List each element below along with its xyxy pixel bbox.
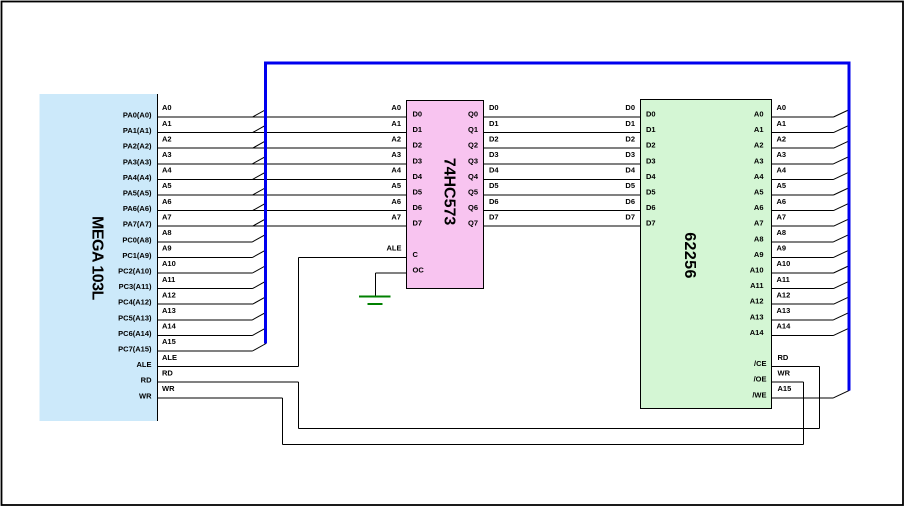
svg-text:A3: A3 <box>754 156 764 165</box>
svg-text:A5: A5 <box>754 188 764 197</box>
svg-text:Q2: Q2 <box>468 141 478 150</box>
svg-text:A4: A4 <box>162 166 172 175</box>
svg-text:D1: D1 <box>413 125 423 134</box>
svg-text:PC6(A14): PC6(A14) <box>118 329 152 338</box>
svg-text:D5: D5 <box>489 181 499 190</box>
svg-text:MEGA 103L: MEGA 103L <box>89 216 106 301</box>
svg-text:A12: A12 <box>162 290 176 299</box>
svg-text:D7: D7 <box>489 212 499 221</box>
svg-text:A0: A0 <box>162 103 172 112</box>
svg-text:D3: D3 <box>489 150 499 159</box>
svg-text:A10: A10 <box>777 259 791 268</box>
svg-text:A1: A1 <box>754 125 764 134</box>
svg-text:D5: D5 <box>646 188 656 197</box>
svg-text:A10: A10 <box>162 259 176 268</box>
svg-text:A7: A7 <box>391 212 401 221</box>
svg-text:A7: A7 <box>162 212 172 221</box>
svg-text:PC5(A13): PC5(A13) <box>118 313 152 322</box>
svg-text:ALE: ALE <box>387 244 402 253</box>
svg-text:Q7: Q7 <box>468 219 478 228</box>
svg-text:A13: A13 <box>777 306 791 315</box>
svg-text:Q3: Q3 <box>468 156 478 165</box>
svg-text:D1: D1 <box>489 119 499 128</box>
svg-text:/OE: /OE <box>754 375 767 384</box>
svg-text:A3: A3 <box>391 150 401 159</box>
svg-text:D2: D2 <box>646 141 656 150</box>
svg-text:A9: A9 <box>162 244 172 253</box>
svg-text:A2: A2 <box>754 141 764 150</box>
svg-text:RD: RD <box>162 368 173 377</box>
svg-text:A3: A3 <box>162 150 172 159</box>
svg-text:PA4(A4): PA4(A4) <box>123 173 152 182</box>
svg-text:D5: D5 <box>625 181 635 190</box>
svg-text:D0: D0 <box>646 110 656 119</box>
svg-text:A3: A3 <box>777 150 787 159</box>
svg-text:D2: D2 <box>489 134 499 143</box>
svg-text:PC1(A9): PC1(A9) <box>122 251 152 260</box>
svg-text:A11: A11 <box>777 275 790 284</box>
svg-text:A0: A0 <box>391 103 401 112</box>
svg-text:A14: A14 <box>162 322 177 331</box>
svg-text:A11: A11 <box>750 281 763 290</box>
svg-text:Q4: Q4 <box>468 172 479 181</box>
svg-text:A15: A15 <box>162 337 176 346</box>
svg-text:A5: A5 <box>162 181 172 190</box>
svg-text:D4: D4 <box>489 166 499 175</box>
svg-text:A8: A8 <box>777 228 787 237</box>
svg-text:D3: D3 <box>646 156 656 165</box>
svg-text:PA3(A3): PA3(A3) <box>123 157 152 166</box>
svg-text:D5: D5 <box>413 188 423 197</box>
svg-text:D2: D2 <box>413 141 423 150</box>
svg-text:A12: A12 <box>750 297 764 306</box>
svg-text:A14: A14 <box>777 322 792 331</box>
svg-text:D6: D6 <box>413 203 423 212</box>
svg-text:A1: A1 <box>162 119 172 128</box>
svg-text:D1: D1 <box>625 119 635 128</box>
svg-text:PC2(A10): PC2(A10) <box>118 267 152 276</box>
svg-text:PA7(A7): PA7(A7) <box>123 220 152 229</box>
svg-text:D3: D3 <box>625 150 635 159</box>
svg-text:D3: D3 <box>413 156 423 165</box>
svg-text:PA1(A1): PA1(A1) <box>123 126 152 135</box>
svg-text:Q5: Q5 <box>468 188 478 197</box>
svg-text:RD: RD <box>141 376 152 385</box>
svg-text:WR: WR <box>139 391 152 400</box>
svg-text:D0: D0 <box>413 110 423 119</box>
svg-text:A15: A15 <box>778 384 792 393</box>
svg-text:D7: D7 <box>625 212 635 221</box>
svg-text:A4: A4 <box>391 166 401 175</box>
svg-text:A6: A6 <box>754 203 764 212</box>
svg-text:PC0(A8): PC0(A8) <box>122 235 152 244</box>
svg-text:A9: A9 <box>777 244 787 253</box>
svg-text:A6: A6 <box>391 197 401 206</box>
svg-text:A9: A9 <box>754 250 764 259</box>
svg-text:WR: WR <box>162 384 175 393</box>
svg-text:D7: D7 <box>646 219 656 228</box>
svg-text:A2: A2 <box>777 134 787 143</box>
svg-text:62256: 62256 <box>681 232 698 279</box>
svg-text:PC4(A12): PC4(A12) <box>118 298 152 307</box>
svg-text:A14: A14 <box>750 328 765 337</box>
svg-text:Q1: Q1 <box>468 125 478 134</box>
svg-text:A4: A4 <box>754 172 764 181</box>
svg-text:A5: A5 <box>777 181 787 190</box>
svg-text:A13: A13 <box>750 312 764 321</box>
svg-text:D4: D4 <box>413 172 423 181</box>
svg-text:PA0(A0): PA0(A0) <box>123 111 152 120</box>
svg-text:D0: D0 <box>625 103 635 112</box>
svg-text:D1: D1 <box>646 125 656 134</box>
svg-text:A5: A5 <box>391 181 401 190</box>
svg-text:A1: A1 <box>391 119 401 128</box>
svg-text:/WE: /WE <box>752 390 766 399</box>
svg-text:A8: A8 <box>754 234 764 243</box>
svg-text:A0: A0 <box>777 103 787 112</box>
svg-text:D2: D2 <box>625 134 635 143</box>
svg-text:PC7(A15): PC7(A15) <box>118 345 152 354</box>
svg-text:D4: D4 <box>625 166 635 175</box>
svg-text:Q0: Q0 <box>468 110 478 119</box>
svg-text:/CE: /CE <box>754 359 767 368</box>
svg-text:A10: A10 <box>750 266 764 275</box>
svg-text:D0: D0 <box>489 103 499 112</box>
svg-text:Q6: Q6 <box>468 203 478 212</box>
svg-text:PA6(A6): PA6(A6) <box>123 204 152 213</box>
svg-text:74HC573: 74HC573 <box>440 158 457 226</box>
svg-text:D6: D6 <box>646 203 656 212</box>
svg-text:A11: A11 <box>162 275 175 284</box>
svg-text:A1: A1 <box>777 119 787 128</box>
svg-text:A0: A0 <box>754 110 764 119</box>
svg-text:PC3(A11): PC3(A11) <box>119 282 152 291</box>
svg-text:C: C <box>413 250 419 259</box>
svg-text:A13: A13 <box>162 306 176 315</box>
svg-text:A2: A2 <box>162 134 172 143</box>
svg-text:D6: D6 <box>625 197 635 206</box>
svg-text:A7: A7 <box>777 212 787 221</box>
svg-text:WR: WR <box>778 368 791 377</box>
svg-text:A6: A6 <box>162 197 172 206</box>
svg-text:A7: A7 <box>754 219 764 228</box>
svg-text:D4: D4 <box>646 172 656 181</box>
svg-text:D7: D7 <box>413 219 423 228</box>
svg-text:A8: A8 <box>162 228 172 237</box>
svg-text:A2: A2 <box>391 134 401 143</box>
svg-text:RD: RD <box>778 353 789 362</box>
svg-text:A4: A4 <box>777 166 787 175</box>
svg-text:PA5(A5): PA5(A5) <box>123 189 152 198</box>
svg-text:ALE: ALE <box>137 360 152 369</box>
svg-text:PA2(A2): PA2(A2) <box>123 142 152 151</box>
svg-text:OC: OC <box>413 266 425 275</box>
svg-text:A12: A12 <box>777 290 791 299</box>
svg-text:ALE: ALE <box>162 353 177 362</box>
svg-text:D6: D6 <box>489 197 499 206</box>
svg-text:A6: A6 <box>777 197 787 206</box>
